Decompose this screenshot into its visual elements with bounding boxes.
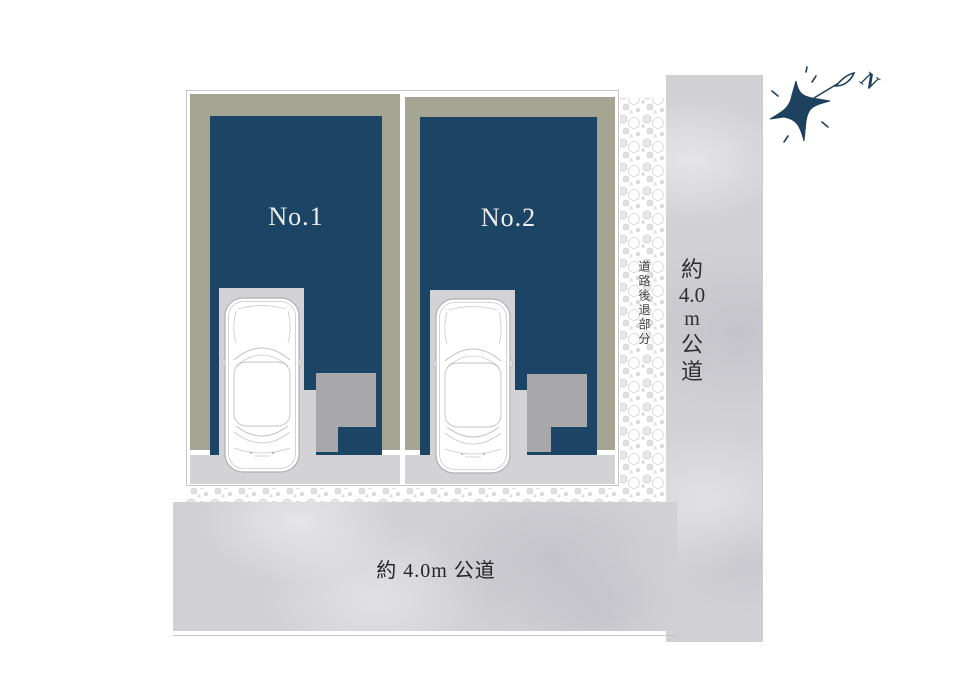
lot1-porch: [316, 373, 376, 427]
right-road-char: 4.0: [667, 283, 717, 308]
road-bottom-border-line: [173, 635, 677, 636]
lot1-porch-step: [316, 427, 338, 452]
compass-north-icon: N: [762, 44, 887, 144]
right-road-char: 公: [667, 331, 717, 358]
lot2-label: No.2: [420, 203, 597, 233]
bottom-road-label: 約 4.0m 公道: [336, 554, 536, 583]
car-icon: [222, 296, 302, 474]
lot2-porch-step: [527, 427, 551, 452]
lot2-porch: [527, 374, 587, 427]
right-road-char: 約: [667, 256, 717, 283]
car-icon: [433, 297, 513, 475]
right-road-char: m: [667, 308, 717, 331]
setback-label: 道路後退部分: [636, 260, 653, 372]
right-road-char: 道: [667, 358, 717, 385]
lot1-label: No.1: [210, 202, 382, 232]
right-road-label: 約 4.0 m 公 道: [667, 256, 717, 385]
site-plan: No.1 No.2 道路後退部分 約 4.0 m 公 道 約 4.0m 公道: [0, 0, 955, 700]
compass-n-letter: N: [855, 65, 884, 96]
